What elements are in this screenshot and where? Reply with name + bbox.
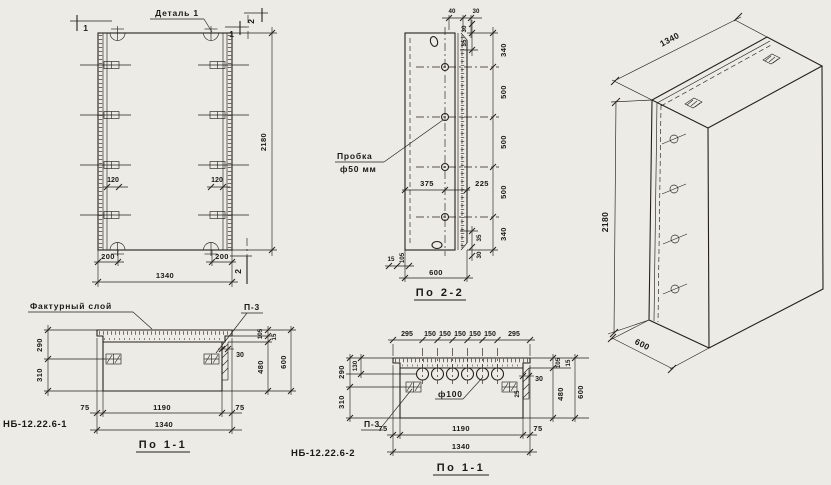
section-1-1-title-b: По 1-1: [437, 462, 486, 474]
dim-1340-b: 1340: [452, 442, 470, 451]
dim-500-2: 500: [499, 135, 508, 149]
panel-mark-a: НБ-12.22.6-1: [3, 419, 67, 430]
dim-480-a: 480: [256, 360, 265, 374]
dim-75-right-b: 75: [533, 424, 542, 433]
dim-105-a: 105: [257, 328, 264, 339]
plug-label-line2: ф50 мм: [340, 164, 377, 174]
dim-1340: 1340: [156, 271, 174, 280]
iso-plug-holes: [662, 134, 687, 294]
dim-130-b: 130: [352, 360, 359, 371]
dim-340-top: 340: [499, 43, 508, 57]
p3-label-b: П-3: [364, 419, 380, 429]
factur-layer-label: Фактурный слой: [30, 301, 112, 311]
dim-40: 40: [449, 8, 456, 15]
drawing-sheet: 120 120 200 200 1340 2180 1 1 2 2 Деталь…: [0, 0, 831, 485]
hole-diameter-label: ф100: [438, 389, 463, 399]
section-mark-1-left: 1: [83, 23, 89, 33]
dim-290-b: 290: [337, 365, 346, 379]
dim-35-tr: 35: [461, 39, 468, 46]
dim-2180: 2180: [259, 133, 268, 151]
dim-600-a: 600: [279, 355, 288, 369]
facing-slab-b: [393, 358, 530, 368]
dim-310-a: 310: [35, 368, 44, 382]
loop-recess-top: [429, 36, 439, 48]
panel-outline: [98, 33, 232, 250]
dim-340-bottom: 340: [499, 227, 508, 241]
dim-15: 15: [388, 256, 395, 263]
detail-callout-label: Деталь 1: [155, 8, 199, 18]
dim-225: 225: [475, 179, 489, 188]
dim-150-3: 150: [454, 331, 466, 338]
front-elevation-view: 120 120 200 200 1340 2180 1 1 2 2 Деталь…: [70, 8, 277, 287]
dim-1190-b: 1190: [452, 424, 470, 433]
section-1-1-title-a: По 1-1: [139, 439, 188, 451]
dim-105: 105: [399, 252, 406, 263]
loop-recess-bottom: [432, 242, 442, 249]
dim-150-1: 150: [424, 331, 436, 338]
dim-30-top: 30: [473, 8, 480, 15]
dim-75-left-a: 75: [80, 403, 89, 412]
dim-105-b: 105: [555, 357, 562, 368]
dim-150-5: 150: [484, 331, 496, 338]
dim-200-right: 200: [215, 252, 229, 261]
dim-600-b: 600: [576, 385, 585, 399]
dim-150-2: 150: [439, 331, 451, 338]
section-1-1-view-a: 290 310 105 15 480 600 30 75 1190 75 134…: [3, 301, 296, 452]
dim-200-left: 200: [101, 252, 115, 261]
section-2-2-view: 40 30 30 35 340 500 500 500 340 35 30 37…: [335, 8, 508, 300]
dim-150-4: 150: [469, 331, 481, 338]
side-anchors: [80, 62, 249, 219]
dim-290-a: 290: [35, 338, 44, 352]
section-1-1-view-b: 295 150 150 150 150 150 295 130 290 310 …: [291, 331, 589, 475]
p3-label-a: П-3: [244, 302, 260, 312]
panel-mark-b: НБ-12.22.6-2: [291, 448, 355, 459]
iso-dim-2180: 2180: [600, 212, 610, 233]
dim-75-right-a: 75: [235, 403, 244, 412]
dim-25-b: 25: [514, 390, 521, 397]
plug-label-line1: Пробка: [337, 151, 373, 161]
dim-375: 375: [420, 179, 434, 188]
top-face: [652, 37, 822, 128]
dim-310-b: 310: [337, 395, 346, 409]
section-2-2-title: По 2-2: [416, 287, 465, 299]
dim-120-right: 120: [211, 177, 223, 184]
front-face: [708, 66, 823, 348]
dim-15-b: 15: [565, 359, 572, 366]
panel-drawing: 120 120 200 200 1340 2180 1 1 2 2 Деталь…: [0, 0, 831, 485]
dim-30-b: 30: [535, 376, 543, 383]
dim-30-tr: 30: [461, 25, 468, 32]
iso-dim-1340: 1340: [658, 30, 681, 48]
dim-1190-a: 1190: [153, 403, 171, 412]
dim-500-1: 500: [499, 85, 508, 99]
embedded-anchor: [106, 354, 219, 364]
lifting-loop: [110, 26, 219, 256]
dim-120-left: 120: [107, 177, 119, 184]
loop-openings: [685, 54, 780, 108]
section-mark-2-bottom: 2: [233, 268, 243, 274]
dim-600: 600: [429, 268, 443, 277]
dim-500-3: 500: [499, 185, 508, 199]
section-mark-2-top: 2: [246, 18, 256, 24]
section-mark-1-right: 1: [229, 29, 235, 39]
hole-row: [417, 348, 504, 384]
dim-295-l: 295: [401, 331, 413, 338]
dim-30-a: 30: [236, 352, 244, 359]
dim-480-b: 480: [556, 387, 565, 401]
dim-30-br: 30: [476, 251, 483, 258]
isometric-view: 1340 2180 600: [600, 13, 823, 373]
dim-1340-a: 1340: [155, 420, 173, 429]
plug-holes: [416, 64, 499, 221]
dim-15-a: 15: [271, 333, 278, 340]
dim-35-br: 35: [476, 234, 483, 241]
dim-295-r: 295: [508, 331, 520, 338]
